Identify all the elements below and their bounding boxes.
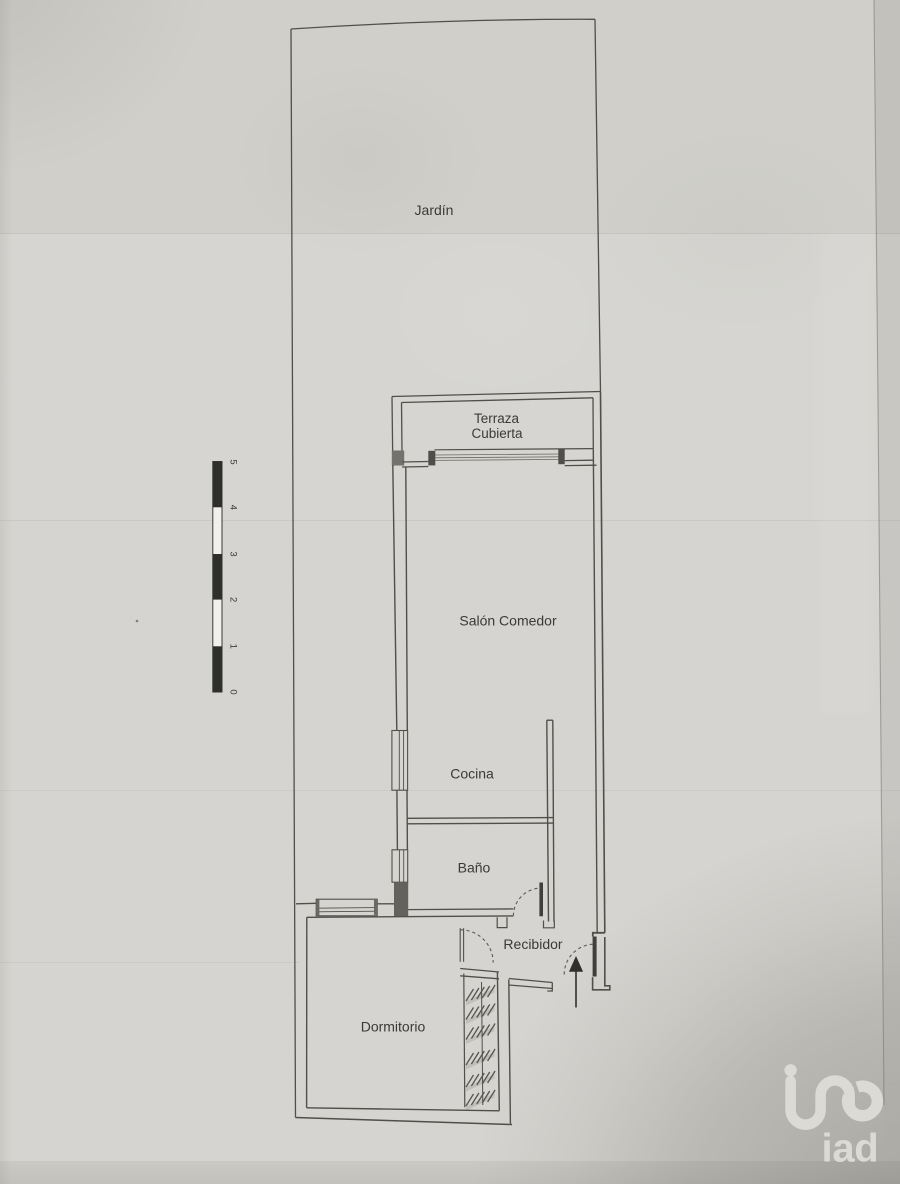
svg-text:3: 3 xyxy=(228,551,239,556)
svg-text:Terraza: Terraza xyxy=(474,411,520,426)
svg-text:0: 0 xyxy=(228,689,239,694)
svg-text:Recibidor: Recibidor xyxy=(503,936,562,952)
svg-text:iad: iad xyxy=(822,1127,879,1171)
svg-text:Baño: Baño xyxy=(458,860,491,876)
svg-text:4: 4 xyxy=(228,505,239,510)
svg-text:5: 5 xyxy=(228,459,239,464)
svg-text:Dormitorio: Dormitorio xyxy=(361,1019,426,1035)
svg-text:Salón Comedor: Salón Comedor xyxy=(459,613,557,629)
svg-text:Cubierta: Cubierta xyxy=(471,426,523,441)
svg-text:Cocina: Cocina xyxy=(450,766,494,782)
svg-text:Jardín: Jardín xyxy=(415,202,454,218)
svg-text:1: 1 xyxy=(228,644,239,649)
svg-text:2: 2 xyxy=(228,597,239,602)
